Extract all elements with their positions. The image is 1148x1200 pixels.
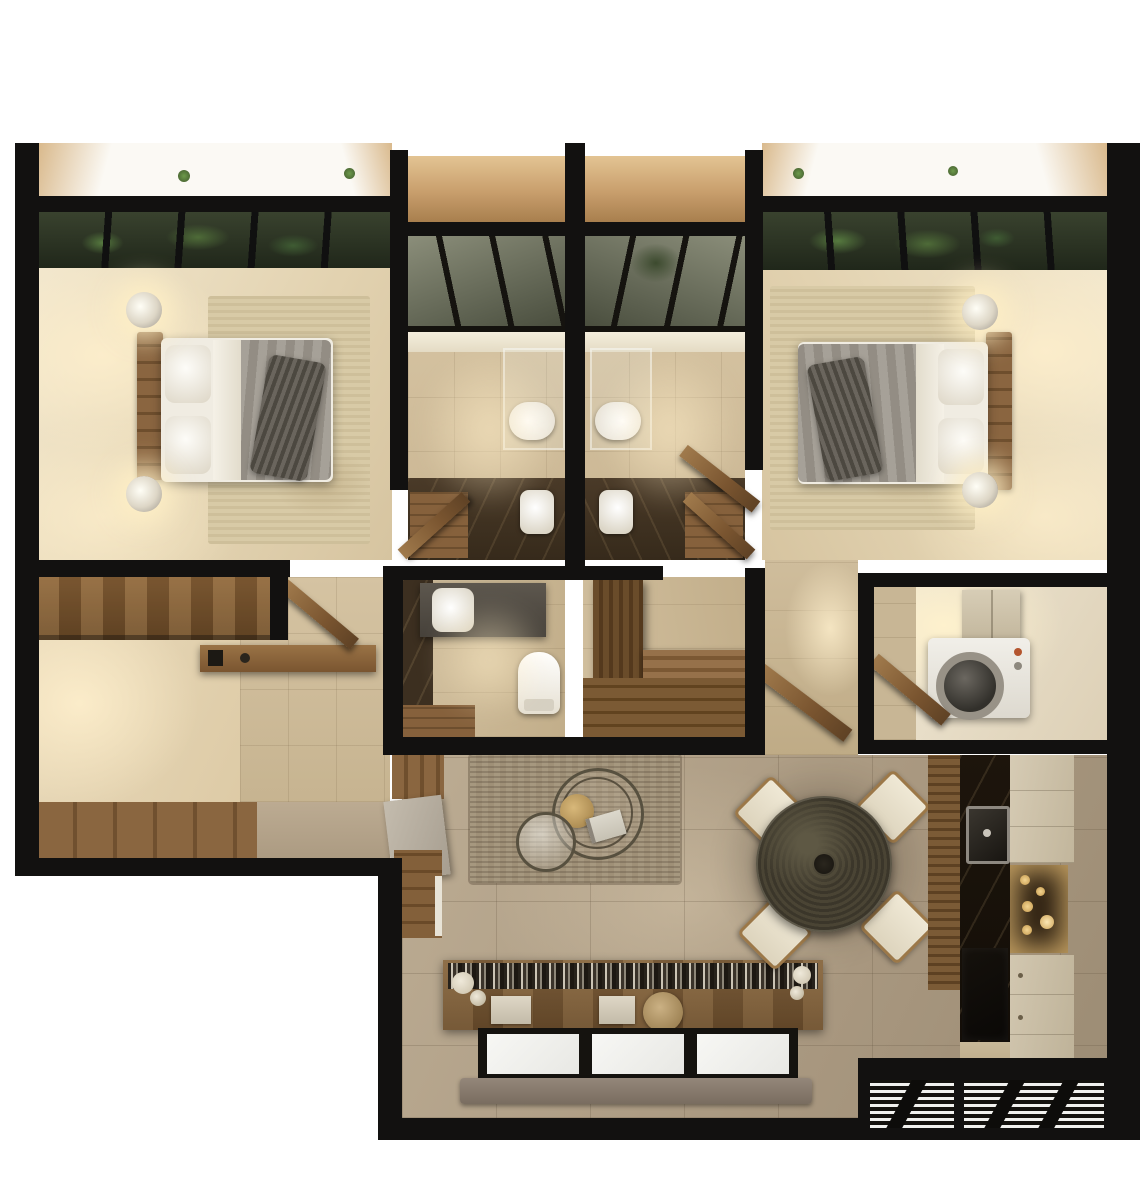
kitchen-upper-cabinet [1010,755,1074,863]
closet-plank-floor [583,678,747,737]
dining-table [756,796,892,932]
grille-bar [1036,1080,1082,1128]
louvered-grille-left [870,1080,954,1128]
bed-pillow [938,418,984,474]
washer-controls [1014,648,1022,656]
wall-closet-right [745,568,765,755]
console-vase [793,966,811,984]
kitchen-slat-wall [928,755,962,990]
wall-bathrooms-top-beam [392,222,762,236]
grille-bar [884,1080,930,1128]
closet-bench-platform [643,650,747,680]
bedroom-right-headboard [986,332,1012,490]
wall-center-bathrooms [565,143,585,568]
wall-beam-bedroom-left [39,196,392,212]
living-window-frame [478,1028,798,1080]
wall-outer-right [1107,143,1140,1140]
kitchen-faucet [983,829,991,837]
toilet-tank [524,699,554,711]
plant-sprig [948,166,958,176]
study-wood-floor [37,802,257,858]
wall-beam-bedroom-right [762,196,1107,212]
bathroom-left-skylight [408,236,565,332]
bathroom-right-skylight [583,236,745,332]
bed-pillow [165,345,211,403]
cabinet-seam [991,590,993,642]
wall-study-door-stub [270,560,288,640]
wall-bedroom-study [15,560,290,577]
bedroom-left-lamp-top [126,292,162,328]
wall-utility-top [858,573,1107,587]
closet-wardrobe [593,580,643,682]
wall-powder-closet-bottom [383,737,765,755]
washing-machine [928,638,1030,718]
console-vase [790,986,804,1000]
plant-sprig [344,168,355,179]
bathroom-right-basin [599,490,633,534]
bedroom-right-bed [798,342,988,484]
console-box [491,996,531,1024]
kitchen-sink [966,806,1010,864]
wall-utility-bottom [858,740,1107,754]
cabinet-handle [1018,1015,1023,1020]
bed-sheet-fold [213,340,241,480]
bathroom-right-ledge [583,156,745,222]
bedroom-left-bed [161,338,333,482]
bathroom-right-toilet [595,402,641,440]
floor-plan-render [0,0,1148,1200]
wall-closet-top [383,566,663,580]
media-console [443,960,823,1030]
living-sideboard-top [392,753,444,799]
table-center-hub [814,854,834,874]
wall-study-bottom [15,858,402,876]
bottle [1020,875,1030,885]
wall-outer-left [15,143,39,875]
utility-wall-cabinet [962,590,1020,642]
cabinet-handle [1018,973,1023,978]
powder-basin [432,588,474,632]
bedroom-left-skylight-garden [39,212,392,272]
window-pane [487,1034,579,1074]
bathroom-left-basin [520,490,554,534]
bedroom-left-headboard [137,332,163,480]
kitchen-lit-shelf [1010,865,1068,953]
bed-pillow [165,416,211,474]
window-pane [697,1034,789,1074]
louvered-grille-right [964,1080,1104,1128]
plant-sprig [178,170,190,182]
shelf-decor [208,650,223,666]
bottle [1040,915,1054,929]
grille-bar [982,1080,1028,1128]
powder-toilet [518,652,560,714]
bedroom-right-lamp-top [962,294,998,330]
powder-wood-floor [403,705,475,737]
bedroom-left-lamp-bottom [126,476,162,512]
kitchen-cooktop [962,948,1008,1040]
shelf-decor [240,653,250,663]
bottle [1022,925,1032,935]
study-floor-taupe [257,802,390,858]
wall-bathroom-left [390,150,408,490]
wall-living-left [378,875,402,1140]
kitchen-lower-cabinets [1010,955,1074,1075]
bedroom-right-parapet [762,143,1107,198]
console-box [599,996,635,1024]
bedroom-right-skylight-garden [762,212,1107,274]
wall-utility-left [858,573,874,754]
wall-bathroom-right [745,150,763,470]
console-vase [470,990,486,1006]
window-pane [592,1034,684,1074]
plant-sprig [793,168,804,179]
bottle [1036,887,1045,896]
bottle [1022,901,1033,912]
balcony-sill [460,1078,812,1104]
bathroom-left-toilet [509,402,555,440]
console-bowl [643,992,683,1032]
console-books [448,963,818,989]
coffee-table-small [516,812,576,872]
console-vase [452,972,474,994]
bedroom-right-lamp-bottom [962,472,998,508]
bedroom-left-parapet [39,143,392,198]
wall-powder-left [383,568,403,755]
bathroom-left-ledge [408,156,565,222]
cabinet-edge [435,876,442,936]
washer-controls [1014,662,1022,670]
bed-pillow [938,349,984,405]
study-desk [37,577,273,640]
